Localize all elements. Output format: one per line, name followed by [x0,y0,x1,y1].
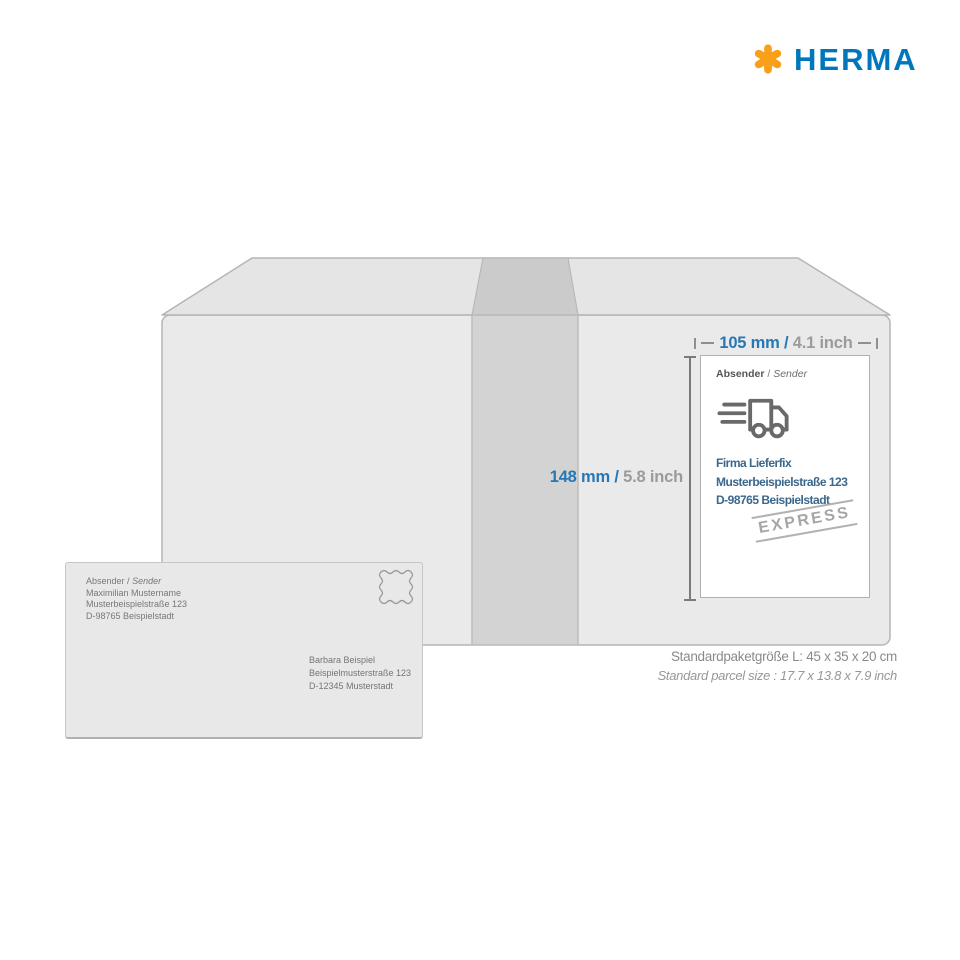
herma-logo: HERMA [751,42,918,76]
envelope-recipient-city: D-12345 Musterstadt [309,680,411,693]
label-sender-header: Absender / Sender [716,368,859,380]
envelope-sender-block: Absender / Sender Maximilian Mustername … [86,576,187,622]
height-dimension-text: 148 mm / 5.8 inch [550,468,683,487]
herma-asterisk-icon [751,42,785,76]
dimension-tick-left [694,338,696,349]
parcel-size-caption: Standardpaketgröße L: 45 x 35 x 20 cm St… [658,647,897,685]
shipping-label: Absender / Sender Firma Lieferfix Muster… [700,355,870,598]
envelope-sender-name: Maximilian Mustername [86,588,187,600]
envelope: Absender / Sender Maximilian Mustername … [65,562,423,739]
envelope-recipient-name: Barbara Beispiel [309,654,411,667]
envelope-recipient-street: Beispielmusterstraße 123 [309,667,411,680]
height-dimension-tick-bottom [684,599,696,601]
herma-parcel-illustration: HERMA 105 mm / 4.1 inch 148 mm / 5.8 inc… [0,0,960,960]
height-dimension-tick-top [684,356,696,358]
box-tape-top [472,258,578,315]
herma-wordmark: HERMA [794,44,918,75]
label-address-company: Firma Lieferfix [716,454,859,473]
width-dimension-text: 105 mm / 4.1 inch [719,334,852,353]
dimension-line-left [701,342,714,344]
label-address-street: Musterbeispielstraße 123 [716,473,859,492]
envelope-sender-header: Absender / Sender [86,576,187,588]
postage-stamp-icon [378,568,418,606]
delivery-truck-icon [717,395,791,443]
envelope-sender-street: Musterbeispielstraße 123 [86,599,187,611]
parcel-size-imperial: Standard parcel size : 17.7 x 13.8 x 7.9… [658,666,897,685]
envelope-recipient-block: Barbara Beispiel Beispielmusterstraße 12… [309,654,411,693]
width-dimension-annotation: 105 mm / 4.1 inch [694,333,878,353]
dimension-tick-right [876,338,878,349]
dimension-line-right [858,342,871,344]
height-dimension-line [689,357,691,600]
parcel-size-metric: Standardpaketgröße L: 45 x 35 x 20 cm [658,647,897,666]
envelope-sender-city: D-98765 Beispielstadt [86,611,187,623]
